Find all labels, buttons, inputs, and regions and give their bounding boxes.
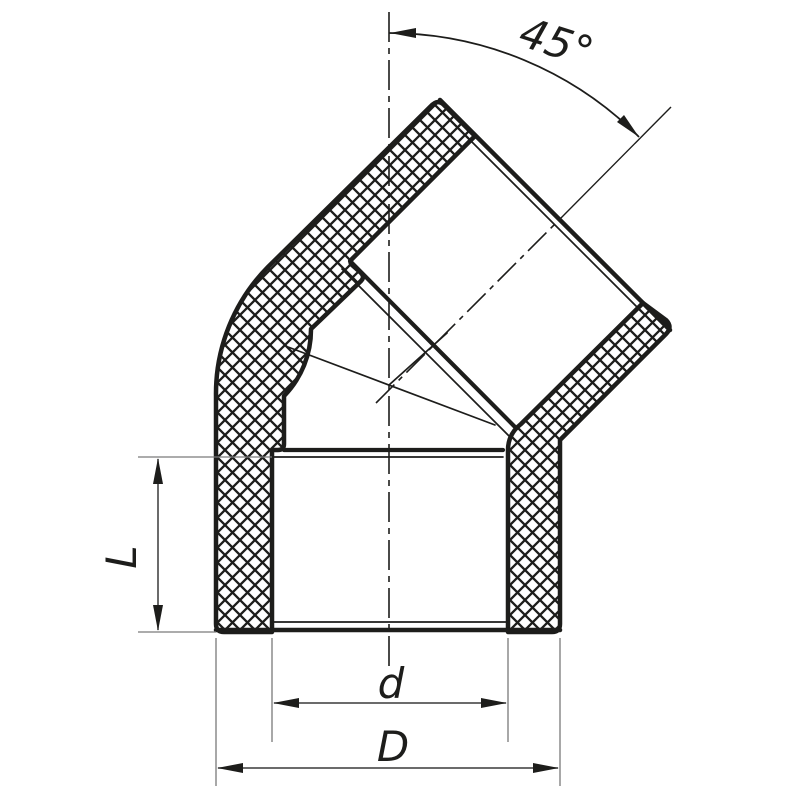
dimension-arrow bbox=[153, 458, 163, 484]
dimension-arrow bbox=[273, 698, 299, 708]
left-wall-section bbox=[216, 102, 475, 632]
elbow-fitting-section-drawing: 45° L d D bbox=[0, 0, 800, 800]
angled-centerline bbox=[376, 220, 559, 403]
dimension-arrow bbox=[533, 763, 559, 773]
inner-diameter-label: d bbox=[378, 659, 405, 708]
bore-intersection-line bbox=[288, 347, 495, 425]
outer-diameter-label: D bbox=[377, 722, 409, 771]
dimension-arrow bbox=[481, 698, 507, 708]
dimension-arrow bbox=[390, 28, 416, 38]
dimension-arrow bbox=[217, 763, 243, 773]
bore-intersection-line-diagonal bbox=[389, 333, 447, 385]
socket-depth-label: L bbox=[97, 545, 146, 568]
fitting-body bbox=[216, 100, 670, 632]
right-wall-section bbox=[508, 303, 670, 632]
dimension-arrow bbox=[617, 115, 639, 137]
inner-diameter-dimension-d: d bbox=[273, 659, 507, 708]
depth-dimension-L: L bbox=[97, 458, 163, 631]
angle-label: 45° bbox=[514, 7, 600, 77]
dimension-arrow bbox=[153, 605, 163, 631]
angled-centerline-extension bbox=[559, 107, 671, 220]
technical-drawing-canvas: 45° L d D bbox=[0, 0, 800, 800]
